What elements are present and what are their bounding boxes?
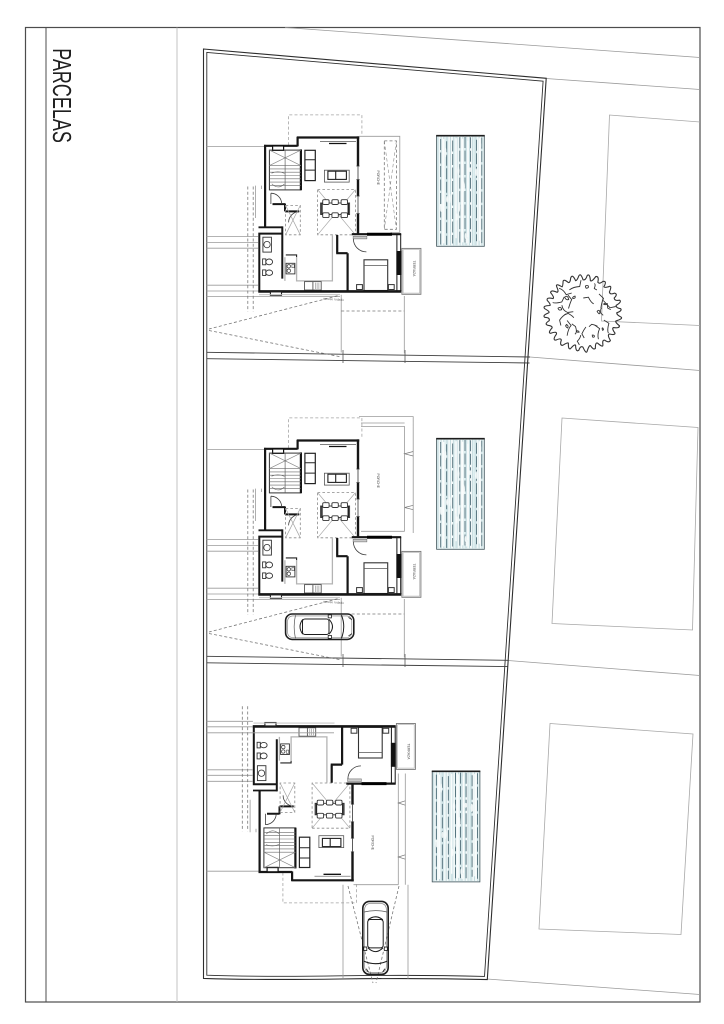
svg-text:TERRAZA: TERRAZA <box>406 744 410 761</box>
svg-text:TERRAZA: TERRAZA <box>412 564 416 581</box>
svg-text:PORCHE: PORCHE <box>376 474 380 489</box>
svg-text:TERRAZA: TERRAZA <box>412 261 416 278</box>
svg-text:PORCHE: PORCHE <box>376 171 380 186</box>
svg-text:PARCELAS: PARCELAS <box>47 48 77 143</box>
svg-text:PORCHE: PORCHE <box>371 836 375 851</box>
